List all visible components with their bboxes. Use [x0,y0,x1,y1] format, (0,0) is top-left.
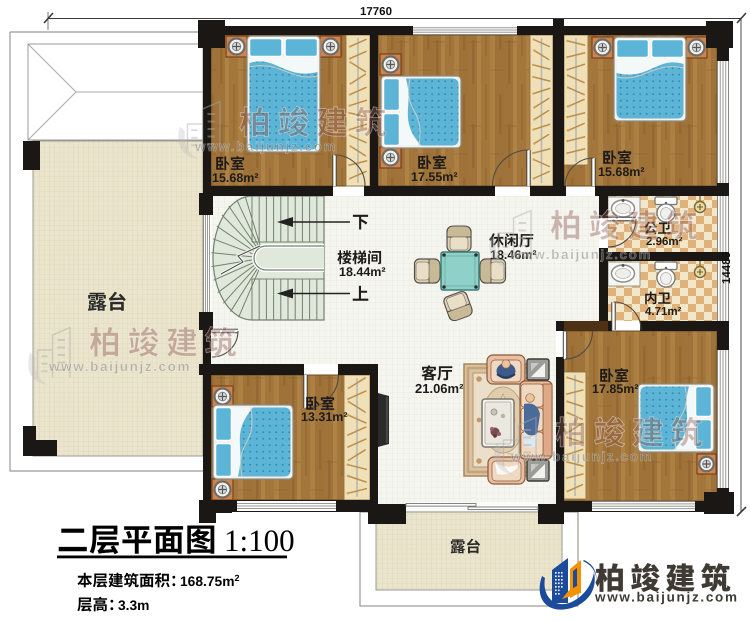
svg-text:17.85m²: 17.85m² [592,382,639,396]
svg-text:168.75m2: 168.75m2 [180,573,239,589]
svg-text:15.68m²: 15.68m² [598,165,645,179]
svg-text:14480: 14480 [721,252,733,284]
svg-text:18.44m²: 18.44m² [339,265,386,279]
svg-text:15.68m²: 15.68m² [212,171,259,185]
svg-text:3.3m: 3.3m [118,598,149,613]
svg-text:www.baijunjz.com: www.baijunjz.com [594,590,739,605]
svg-text:www.baijunjz.com: www.baijunjz.com [509,247,652,262]
svg-text:17.55m²: 17.55m² [411,170,458,184]
svg-text:21.06m²: 21.06m² [415,381,464,396]
svg-text:1:100: 1:100 [224,523,295,558]
svg-text:www.baijunjz.com: www.baijunjz.com [510,449,653,464]
svg-text:17760: 17760 [360,6,392,18]
svg-text:www.baijunjz.com: www.baijunjz.com [194,139,337,154]
svg-text:13.31m²: 13.31m² [301,410,348,424]
svg-text:www.baijunjz.com: www.baijunjz.com [48,359,191,374]
svg-text:4.71m²: 4.71m² [645,306,682,318]
